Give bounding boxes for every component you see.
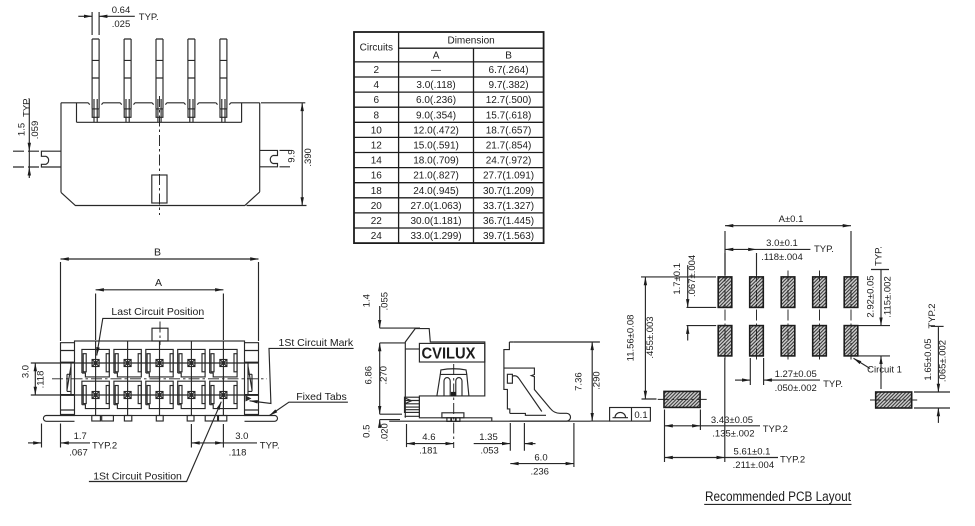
svg-text:20: 20: [371, 201, 383, 212]
svg-text:12.0(.472): 12.0(.472): [413, 125, 459, 136]
svg-text:.020: .020: [380, 423, 391, 442]
svg-text:1.65±0.05: 1.65±0.05: [923, 338, 934, 380]
svg-text:.236: .236: [530, 467, 549, 478]
svg-text:6.86: 6.86: [363, 366, 374, 385]
svg-text:24.0(.945): 24.0(.945): [413, 186, 459, 197]
svg-text:30.0(1.181): 30.0(1.181): [410, 216, 461, 227]
svg-text:.390: .390: [303, 148, 314, 167]
svg-text:Circuit 1: Circuit 1: [867, 365, 902, 376]
svg-text:12: 12: [371, 140, 383, 151]
svg-text:15.7(.618): 15.7(.618): [486, 110, 532, 121]
svg-text:2.92±0.05: 2.92±0.05: [866, 275, 877, 317]
svg-text:15.0(.591): 15.0(.591): [413, 140, 459, 151]
svg-text:1St Circuit Mark: 1St Circuit Mark: [279, 337, 354, 349]
svg-text:1.4: 1.4: [362, 294, 373, 307]
svg-text:6.0: 6.0: [534, 453, 547, 464]
svg-text:TYP.: TYP.: [22, 97, 33, 117]
svg-text:14: 14: [371, 156, 383, 167]
svg-text:8: 8: [374, 110, 380, 121]
svg-text:39.7(1.563): 39.7(1.563): [483, 231, 534, 242]
svg-text:1.27±0.05: 1.27±0.05: [775, 369, 817, 380]
svg-text:27.0(1.063): 27.0(1.063): [410, 201, 461, 212]
svg-text:Circuits: Circuits: [360, 42, 393, 53]
svg-text:3.0: 3.0: [235, 431, 248, 442]
svg-text:9.0(.354): 9.0(.354): [416, 110, 456, 121]
svg-text:.065±.002: .065±.002: [938, 340, 949, 382]
svg-text:0.64: 0.64: [112, 5, 131, 16]
svg-text:Last Circuit Position: Last Circuit Position: [111, 306, 204, 318]
svg-text:6: 6: [374, 95, 380, 106]
svg-text:A: A: [155, 277, 162, 289]
svg-text:TYP.: TYP.: [139, 12, 159, 23]
svg-text:1.7: 1.7: [74, 431, 87, 442]
svg-text:21.0(.827): 21.0(.827): [413, 171, 459, 182]
svg-text:11.56±0.08: 11.56±0.08: [626, 315, 637, 362]
svg-text:27.7(1.091): 27.7(1.091): [483, 171, 534, 182]
svg-text:21.7(.854): 21.7(.854): [486, 140, 532, 151]
svg-text:.118: .118: [229, 447, 247, 458]
svg-text:3.43±0.05: 3.43±0.05: [711, 415, 753, 426]
svg-text:TYP.: TYP.: [874, 246, 885, 266]
svg-text:3.0±0.1: 3.0±0.1: [766, 238, 798, 249]
svg-text:5.61±0.1: 5.61±0.1: [734, 447, 771, 458]
svg-text:7.36: 7.36: [574, 372, 585, 391]
svg-text:.270: .270: [378, 366, 389, 385]
svg-text:36.7(1.445): 36.7(1.445): [483, 216, 534, 227]
svg-text:18.7(.657): 18.7(.657): [486, 125, 532, 136]
svg-text:9.7(.382): 9.7(.382): [489, 80, 529, 91]
svg-text:22: 22: [371, 216, 383, 227]
svg-text:TYP.2: TYP.2: [92, 441, 117, 452]
svg-text:.025: .025: [112, 19, 131, 30]
svg-text:1.7±0.1: 1.7±0.1: [672, 263, 683, 295]
svg-text:TYP.: TYP.: [814, 244, 834, 255]
svg-text:2: 2: [374, 65, 380, 76]
svg-text:6.0(.236): 6.0(.236): [416, 95, 456, 106]
svg-text:.067: .067: [69, 447, 88, 458]
svg-text:.067±.004: .067±.004: [687, 255, 698, 297]
svg-text:1St Circuit Position: 1St Circuit Position: [93, 470, 182, 482]
svg-text:.115±.002: .115±.002: [883, 276, 894, 318]
svg-text:6.7(.264): 6.7(.264): [489, 65, 529, 76]
svg-text:3.0(.118): 3.0(.118): [416, 80, 455, 91]
svg-text:33.0(1.299): 33.0(1.299): [410, 231, 461, 242]
svg-text:Recommended PCB Layout: Recommended PCB Layout: [705, 489, 851, 504]
svg-text:.211±.004: .211±.004: [733, 460, 775, 471]
svg-text:TYP.2: TYP.2: [780, 455, 805, 466]
svg-text:4.6: 4.6: [422, 432, 435, 443]
svg-text:CVILUX: CVILUX: [422, 346, 476, 363]
svg-text:.135±.002: .135±.002: [712, 428, 754, 439]
svg-text:—: —: [431, 65, 441, 76]
svg-text:.059: .059: [30, 121, 41, 140]
svg-text:A±0.1: A±0.1: [779, 214, 804, 225]
svg-text:16: 16: [371, 171, 383, 182]
svg-text:Dimension: Dimension: [447, 36, 494, 47]
svg-text:.118±.004: .118±.004: [761, 252, 803, 263]
svg-text:4: 4: [374, 80, 380, 91]
svg-text:33.7(1.327): 33.7(1.327): [483, 201, 534, 212]
svg-text:.118: .118: [36, 371, 47, 389]
svg-text:.290: .290: [591, 371, 602, 390]
svg-text:30.7(1.209): 30.7(1.209): [483, 186, 534, 197]
svg-text:9.9: 9.9: [287, 149, 298, 162]
svg-text:1.5: 1.5: [17, 123, 28, 136]
svg-text:10: 10: [371, 125, 383, 136]
svg-text:B: B: [505, 51, 512, 62]
svg-text:A: A: [433, 51, 440, 62]
svg-text:1.35: 1.35: [479, 432, 498, 443]
svg-text:0.1: 0.1: [634, 410, 647, 421]
svg-text:18.0(.709): 18.0(.709): [413, 156, 459, 167]
svg-text:18: 18: [371, 186, 383, 197]
svg-text:.455±.003: .455±.003: [645, 316, 656, 358]
svg-text:.181: .181: [419, 446, 438, 457]
svg-text:TYP.: TYP.: [823, 379, 843, 390]
svg-text:.050±.002: .050±.002: [775, 383, 817, 394]
svg-text:3.0: 3.0: [21, 365, 32, 378]
svg-text:B: B: [154, 247, 161, 259]
svg-text:TYP.2: TYP.2: [927, 303, 938, 328]
svg-text:.053: .053: [480, 446, 499, 457]
svg-text:Fixed Tabs: Fixed Tabs: [296, 391, 347, 403]
svg-text:24.7(.972): 24.7(.972): [486, 156, 532, 167]
svg-text:.055: .055: [380, 292, 391, 311]
svg-text:12.7(.500): 12.7(.500): [486, 95, 532, 106]
svg-text:TYP.: TYP.: [260, 441, 280, 452]
svg-text:TYP.2: TYP.2: [763, 424, 788, 435]
svg-text:24: 24: [371, 231, 383, 242]
svg-text:0.5: 0.5: [362, 425, 373, 438]
